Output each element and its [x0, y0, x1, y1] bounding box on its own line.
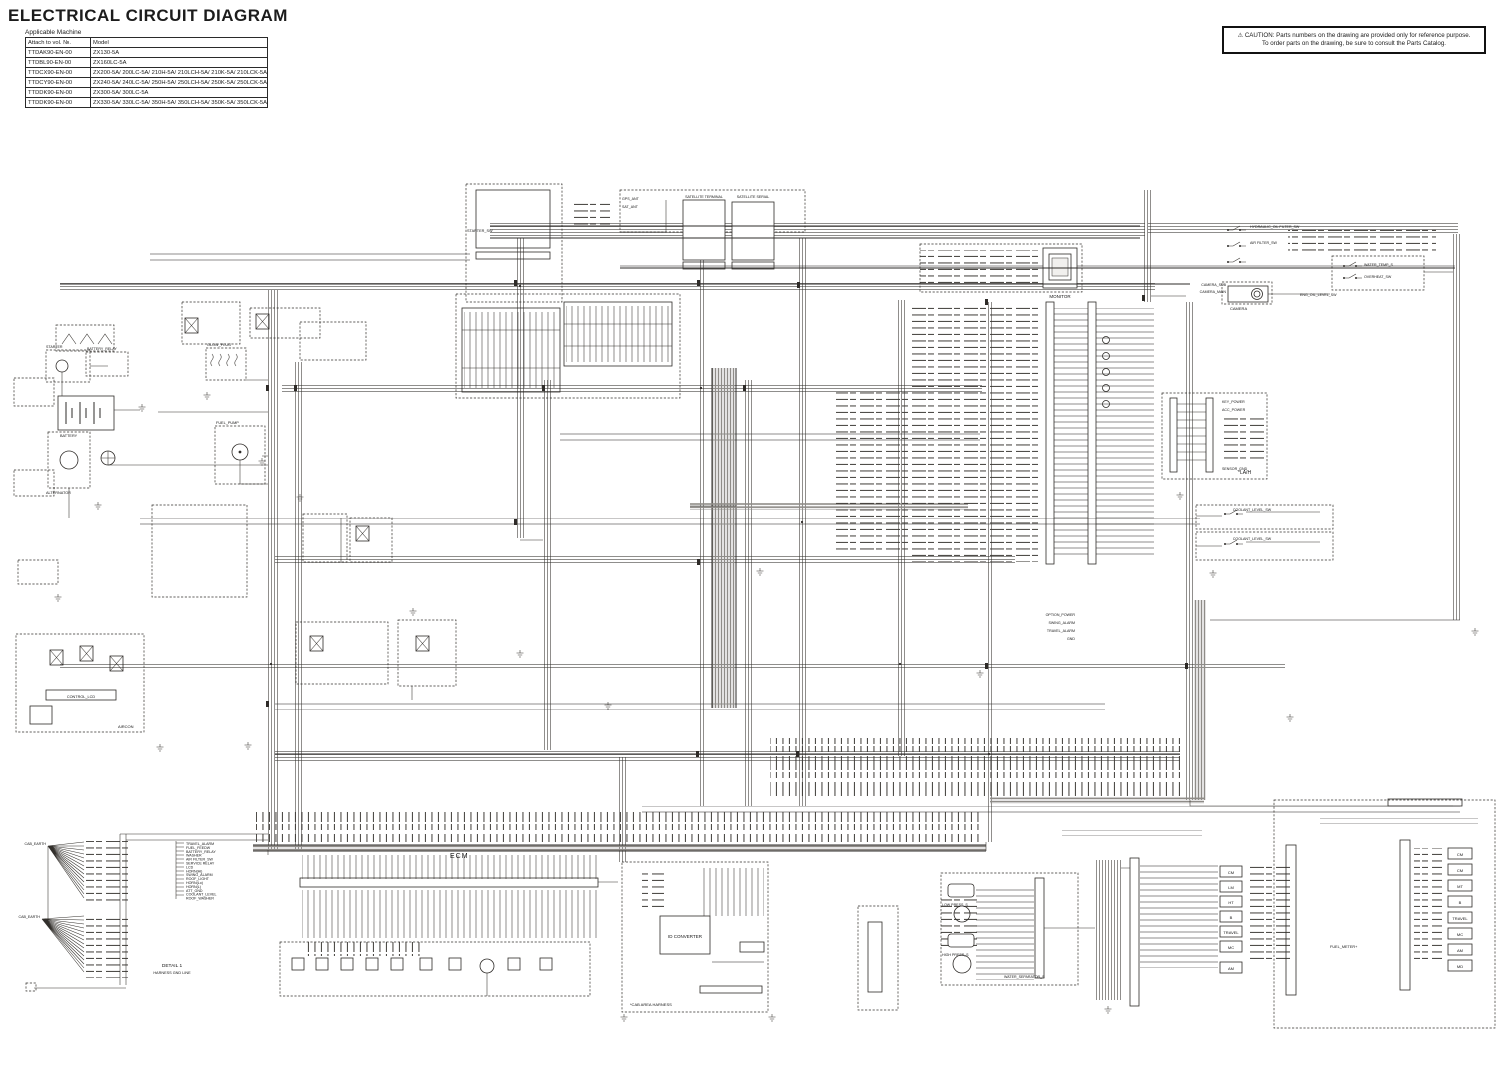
label-glow-plug: GLOW_PLUG: [207, 343, 231, 347]
relay-left-4: TRAVEL: [1223, 930, 1239, 935]
micro-label-texture: [86, 200, 1442, 978]
label-aircon: AIRCON: [118, 724, 134, 729]
label-coolant-level-sw-2: COOLANT_LEVEL_SW: [1233, 537, 1272, 541]
label-cab-earth-1: CAB_EARTH: [24, 842, 46, 846]
label-harness-gnd-line: HARNESS GND LINE: [153, 971, 191, 975]
label-eng-oil-level-sw: ENG_OIL_LEVEL_SW: [1300, 293, 1337, 297]
label-sensor-gnd: SENSOR_GND: [1222, 467, 1248, 471]
relay-right-3: B: [1459, 900, 1462, 905]
label-battery: BATTERY: [60, 434, 78, 438]
label-water-temp-s: WATER_TEMP_S: [1364, 263, 1394, 267]
label-hyd-filter-sw: HYDRAULIC_OIL FILTER_SW: [1250, 225, 1300, 229]
gnd-list-14: ROOF_WASHER: [186, 897, 214, 901]
relay-left-3: B: [1230, 915, 1233, 920]
relay-left-6: AM: [1228, 966, 1234, 971]
label-cab-area: *CAB AREA HARNESS: [630, 1002, 672, 1007]
label-gnd: GND: [1067, 637, 1075, 641]
relay-left-5: MC: [1228, 945, 1234, 950]
label-low-press: LOW PRESS_S: [942, 903, 968, 907]
label-coolant-level-sw-1: COOLANT_LEVEL_SW: [1233, 508, 1272, 512]
circuit-diagram-canvas: ECM STARTER_SW SATELLITE TERMINAL SATELL…: [0, 0, 1511, 1069]
label-camera: CAMERA: [1230, 306, 1247, 311]
label-key-power: KEY_POWER: [1222, 400, 1245, 404]
relay-left-1: LM: [1228, 885, 1234, 890]
label-alternator: ALTERNATOR: [46, 491, 71, 495]
relay-right-5: MC: [1457, 932, 1463, 937]
relay-left-0: CM: [1228, 870, 1234, 875]
label-fuel-pump: FUEL_PUMP: [216, 421, 239, 425]
label-detail1: DETAIL 1: [162, 963, 183, 969]
label-starter: STARTER: [46, 345, 63, 349]
label-monitor: MONITOR: [1049, 294, 1071, 299]
relay-right-0: CM: [1457, 852, 1463, 857]
label-gps-ant: GPS_ANT: [622, 197, 640, 201]
label-ecm: ECM: [450, 853, 469, 860]
label-camera-sub: CAMERA_SUB: [1201, 283, 1226, 287]
label-acc-power: ACC_POWER: [1222, 408, 1246, 412]
relay-right-6: AM: [1457, 948, 1463, 953]
label-control-lcd: CONTROL_LCD: [67, 695, 96, 699]
label-id-converter: ID CONVERTER: [668, 934, 703, 939]
relay-right-7: MD: [1457, 964, 1463, 969]
label-cab-earth-2: CAB_EARTH: [18, 915, 40, 919]
relay-right-2: MT: [1457, 884, 1463, 889]
relay-right-1: CM: [1457, 868, 1463, 873]
harness-gnd-detail: [26, 834, 268, 991]
label-battery-relay: BATTERY_RELAY: [87, 347, 117, 351]
label-high-press: HIGH PRESS_S: [942, 953, 969, 957]
label-overheat-sw: OVERHEAT_SW: [1364, 275, 1392, 279]
relay-left-2: HT: [1228, 900, 1234, 905]
label-swing-alarm: SWING_ALARM: [1048, 621, 1075, 625]
label-travel-alarm: TRAVEL_ALARM: [1047, 629, 1075, 633]
label-option-power: OPTION_POWER: [1046, 613, 1076, 617]
label-camera-main: CAMERA_MAIN: [1200, 290, 1227, 294]
label-starter-sw: STARTER_SW: [467, 229, 493, 233]
label-air-filter-sw: AIR FILTER_SW: [1250, 241, 1277, 245]
page: ELECTRICAL CIRCUIT DIAGRAM Applicable Ma…: [0, 0, 1511, 1069]
label-satellite-terminal: SATELLITE TERMINAL: [685, 195, 723, 199]
label-fuel-meter: FUEL_METER+: [1330, 945, 1358, 949]
label-water-separator: WATER_SEPARATOR_S: [1004, 975, 1045, 979]
label-satellite-serial: SATELLITE SERIAL: [737, 195, 770, 199]
label-sat-ant: SAT_ANT: [622, 205, 639, 209]
relay-right-4: TRAVEL: [1452, 916, 1468, 921]
